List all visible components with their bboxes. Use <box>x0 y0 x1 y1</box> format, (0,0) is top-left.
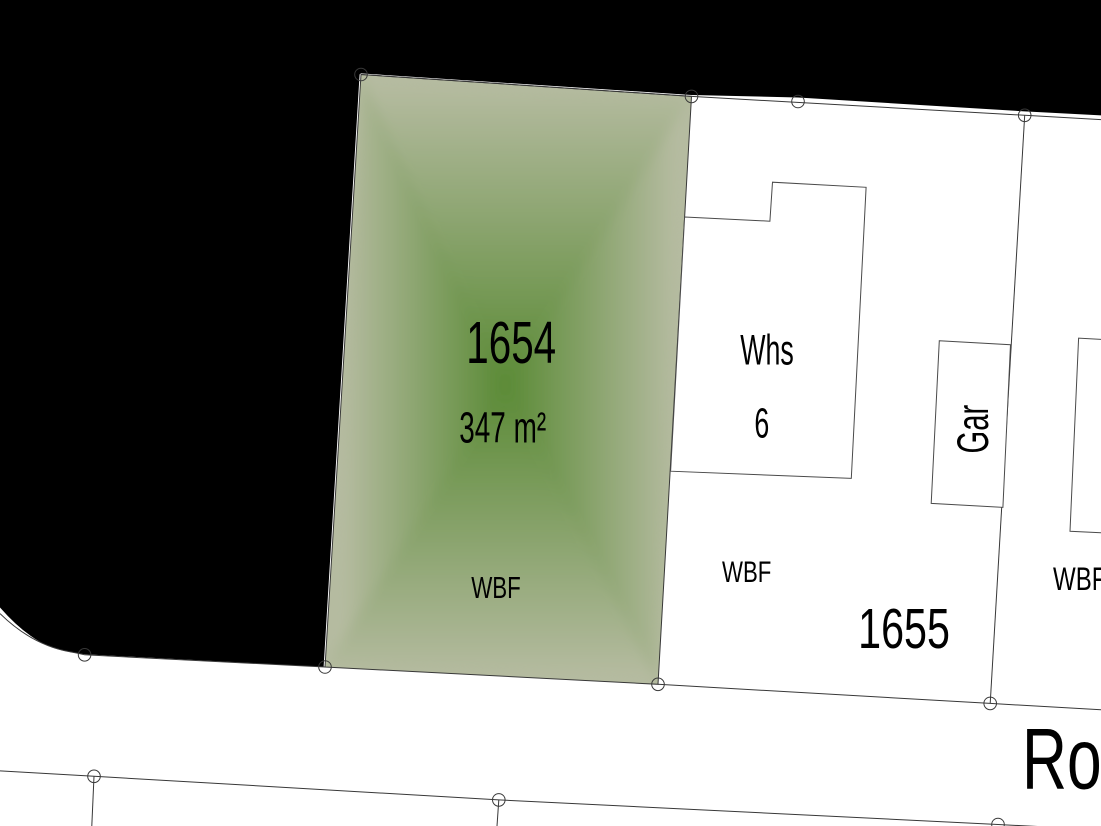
svg-text:WBF: WBF <box>471 571 521 605</box>
svg-text:Whs: Whs <box>740 326 794 374</box>
svg-text:6: 6 <box>754 399 769 447</box>
svg-text:347 m²: 347 m² <box>459 403 546 452</box>
svg-text:1655: 1655 <box>858 598 950 661</box>
svg-text:WBF: WBF <box>1053 562 1101 598</box>
svg-text:Gar: Gar <box>948 405 998 454</box>
svg-text:1654: 1654 <box>466 309 556 376</box>
svg-text:Road: Road <box>1022 710 1101 806</box>
svg-text:WBF: WBF <box>722 555 771 589</box>
